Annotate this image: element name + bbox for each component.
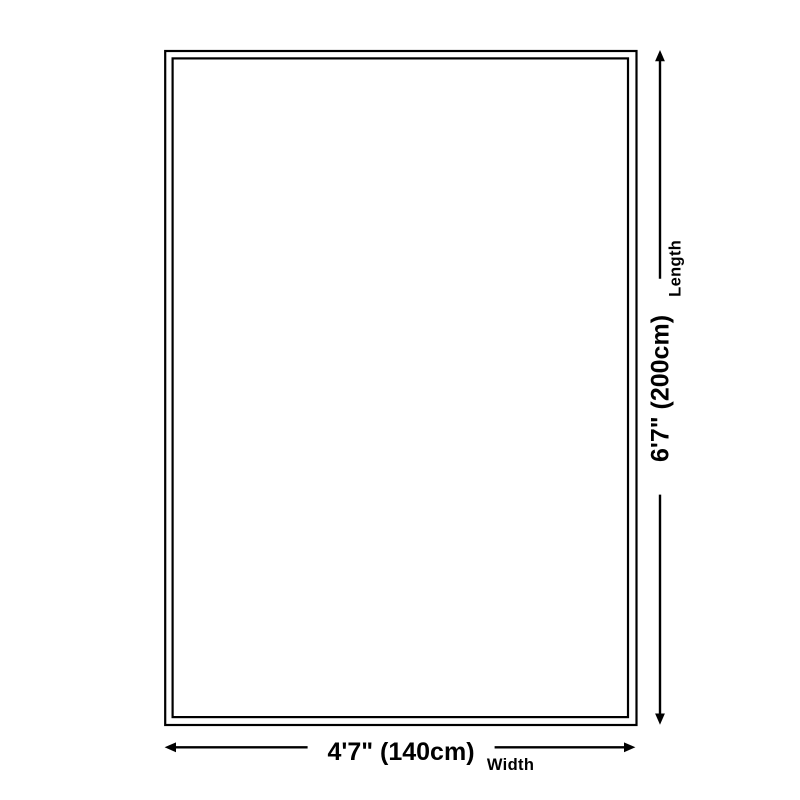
svg-text:Length: Length [667, 240, 685, 297]
svg-text:Width: Width [487, 756, 534, 774]
svg-text:4'7" (140cm): 4'7" (140cm) [327, 738, 474, 766]
svg-text:6'7" (200cm): 6'7" (200cm) [646, 315, 674, 462]
